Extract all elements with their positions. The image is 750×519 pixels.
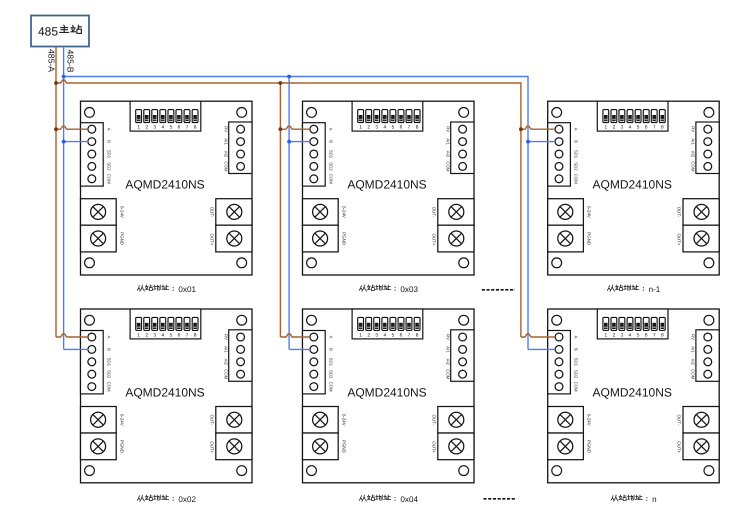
- svg-text:1: 1: [137, 125, 140, 131]
- svg-text:AI1: AI1: [446, 346, 451, 353]
- svg-text:SD2: SD2: [328, 162, 333, 171]
- svg-text:8: 8: [194, 125, 197, 131]
- svg-text:PGND: PGND: [587, 440, 592, 453]
- svg-text:COM: COM: [328, 382, 333, 392]
- svg-text:SD2: SD2: [574, 162, 579, 171]
- svg-text:AQMD2410NS: AQMD2410NS: [347, 385, 426, 399]
- svg-text:OUT+: OUT+: [431, 441, 436, 453]
- svg-text:5: 5: [392, 125, 395, 131]
- svg-text:COM: COM: [691, 369, 696, 379]
- svg-text:PGND: PGND: [342, 440, 347, 453]
- svg-text:1: 1: [604, 332, 607, 338]
- svg-text:OUT-: OUT-: [677, 207, 682, 218]
- svg-text:7: 7: [186, 332, 189, 338]
- svg-text:0x01: 0x01: [178, 285, 196, 294]
- svg-text:OUT-: OUT-: [431, 207, 436, 218]
- svg-text:RV: RV: [446, 334, 451, 340]
- svg-text:AI2: AI2: [224, 151, 229, 158]
- svg-text:AQMD2410NS: AQMD2410NS: [125, 178, 204, 192]
- svg-text:A: A: [574, 128, 579, 131]
- svg-text:AI2: AI2: [446, 151, 451, 158]
- svg-text:0x03: 0x03: [400, 285, 418, 294]
- svg-text:SD2: SD2: [328, 370, 333, 379]
- svg-text:5: 5: [637, 125, 640, 131]
- svg-text:6-24V: 6-24V: [587, 414, 592, 426]
- svg-text:4: 4: [629, 332, 632, 338]
- svg-text:6: 6: [178, 332, 181, 338]
- svg-text:COM: COM: [574, 174, 579, 184]
- svg-text:8: 8: [661, 125, 664, 131]
- svg-text:6-24V: 6-24V: [342, 414, 347, 426]
- svg-text:AI1: AI1: [691, 138, 696, 145]
- svg-text:OUT-: OUT-: [431, 415, 436, 426]
- svg-text:B: B: [574, 348, 579, 351]
- svg-text:OUT-: OUT-: [209, 415, 214, 426]
- svg-text:7: 7: [186, 125, 189, 131]
- svg-text:5: 5: [637, 332, 640, 338]
- svg-text:AI2: AI2: [224, 359, 229, 366]
- svg-text:RV: RV: [224, 126, 229, 132]
- svg-text:COM: COM: [328, 174, 333, 184]
- svg-text:B: B: [328, 348, 333, 351]
- svg-text:PGND: PGND: [587, 232, 592, 245]
- svg-text:2: 2: [145, 125, 148, 131]
- svg-text:A: A: [106, 128, 111, 131]
- svg-text:SD1: SD1: [328, 358, 333, 367]
- svg-text:COM: COM: [691, 161, 696, 171]
- svg-text:1: 1: [359, 125, 362, 131]
- svg-text:AI1: AI1: [224, 346, 229, 353]
- svg-text:SD1: SD1: [574, 358, 579, 367]
- svg-text:PGND: PGND: [120, 440, 125, 453]
- svg-text:3: 3: [375, 332, 378, 338]
- svg-text:2: 2: [613, 125, 616, 131]
- svg-text:COM: COM: [224, 369, 229, 379]
- svg-text:AI1: AI1: [224, 138, 229, 145]
- svg-text:AI1: AI1: [446, 138, 451, 145]
- svg-text:4: 4: [629, 125, 632, 131]
- svg-text:OUT+: OUT+: [209, 233, 214, 245]
- svg-text:SD2: SD2: [574, 370, 579, 379]
- svg-text:6-24V: 6-24V: [342, 206, 347, 218]
- svg-text:A: A: [106, 336, 111, 339]
- svg-text:2: 2: [367, 125, 370, 131]
- svg-text:6-24V: 6-24V: [587, 206, 592, 218]
- svg-text:SD2: SD2: [106, 162, 111, 171]
- svg-text:4: 4: [383, 332, 386, 338]
- svg-text:5: 5: [170, 125, 173, 131]
- svg-text:COM: COM: [574, 382, 579, 392]
- svg-text:AQMD2410NS: AQMD2410NS: [593, 385, 672, 399]
- svg-text:COM: COM: [224, 161, 229, 171]
- svg-text:AI2: AI2: [691, 151, 696, 158]
- svg-text:COM: COM: [446, 369, 451, 379]
- svg-text:OUT-: OUT-: [209, 207, 214, 218]
- svg-text:6: 6: [400, 125, 403, 131]
- svg-text:3: 3: [621, 332, 624, 338]
- svg-text:1: 1: [604, 125, 607, 131]
- svg-text:5: 5: [392, 332, 395, 338]
- svg-text:7: 7: [653, 125, 656, 131]
- svg-text:B: B: [106, 140, 111, 143]
- svg-text:1: 1: [137, 332, 140, 338]
- svg-text:6: 6: [178, 125, 181, 131]
- svg-text:RV: RV: [446, 126, 451, 132]
- svg-text:485: 485: [38, 24, 58, 38]
- svg-text:6: 6: [645, 125, 648, 131]
- svg-text:OUT+: OUT+: [677, 233, 682, 245]
- svg-text:A: A: [328, 128, 333, 131]
- svg-text:RV: RV: [691, 334, 696, 340]
- svg-text:COM: COM: [106, 174, 111, 184]
- svg-text:485-B: 485-B: [66, 50, 76, 73]
- svg-text:0x02: 0x02: [178, 495, 196, 504]
- svg-text:8: 8: [416, 332, 419, 338]
- svg-text:A: A: [328, 336, 333, 339]
- svg-text:RV: RV: [224, 334, 229, 340]
- svg-text:B: B: [574, 140, 579, 143]
- svg-text:0x04: 0x04: [400, 495, 418, 504]
- svg-text:6-24V: 6-24V: [120, 414, 125, 426]
- svg-text:AQMD2410NS: AQMD2410NS: [347, 178, 426, 192]
- svg-text:4: 4: [161, 332, 164, 338]
- svg-text:OUT+: OUT+: [209, 441, 214, 453]
- svg-text:7: 7: [408, 332, 411, 338]
- svg-text:SD2: SD2: [106, 370, 111, 379]
- svg-text:SD1: SD1: [106, 150, 111, 159]
- svg-text:8: 8: [194, 332, 197, 338]
- svg-text:COM: COM: [446, 161, 451, 171]
- svg-text:6-24V: 6-24V: [120, 206, 125, 218]
- svg-text:3: 3: [375, 125, 378, 131]
- svg-text:PGND: PGND: [120, 232, 125, 245]
- svg-text:6: 6: [645, 332, 648, 338]
- svg-text:4: 4: [383, 125, 386, 131]
- svg-text:2: 2: [145, 332, 148, 338]
- svg-text:8: 8: [416, 125, 419, 131]
- svg-text:1: 1: [359, 332, 362, 338]
- svg-text:PGND: PGND: [342, 232, 347, 245]
- svg-text:OUT+: OUT+: [431, 233, 436, 245]
- svg-text:2: 2: [613, 332, 616, 338]
- svg-text:n-1: n-1: [649, 285, 661, 294]
- svg-text:4: 4: [161, 125, 164, 131]
- svg-text:2: 2: [367, 332, 370, 338]
- svg-text:OUT-: OUT-: [677, 415, 682, 426]
- svg-text:SD1: SD1: [106, 358, 111, 367]
- svg-text:3: 3: [153, 332, 156, 338]
- svg-text:485-A: 485-A: [47, 49, 57, 72]
- svg-text:3: 3: [153, 125, 156, 131]
- svg-text:B: B: [106, 348, 111, 351]
- svg-text:8: 8: [661, 332, 664, 338]
- svg-text:SD1: SD1: [328, 150, 333, 159]
- svg-text:7: 7: [408, 125, 411, 131]
- svg-text:AQMD2410NS: AQMD2410NS: [593, 178, 672, 192]
- svg-text:5: 5: [170, 332, 173, 338]
- svg-text:3: 3: [621, 125, 624, 131]
- svg-text:A: A: [574, 336, 579, 339]
- svg-text:7: 7: [653, 332, 656, 338]
- svg-text:AI2: AI2: [691, 359, 696, 366]
- svg-text:RV: RV: [691, 126, 696, 132]
- svg-text:n: n: [652, 495, 657, 504]
- svg-text:AI2: AI2: [446, 359, 451, 366]
- svg-text:OUT+: OUT+: [677, 441, 682, 453]
- svg-text:6: 6: [400, 332, 403, 338]
- svg-text:AQMD2410NS: AQMD2410NS: [125, 385, 204, 399]
- svg-text:B: B: [328, 140, 333, 143]
- svg-text:COM: COM: [106, 382, 111, 392]
- svg-text:SD1: SD1: [574, 150, 579, 159]
- svg-text:AI1: AI1: [691, 346, 696, 353]
